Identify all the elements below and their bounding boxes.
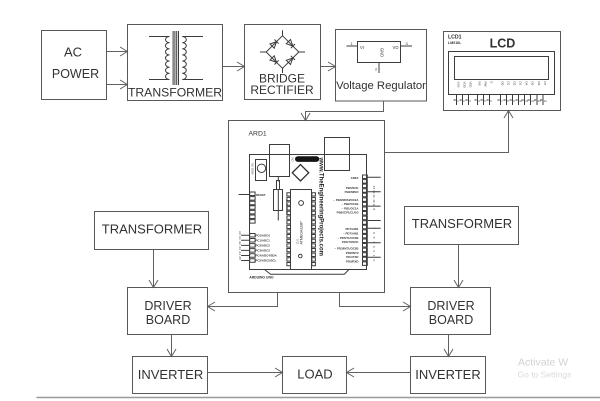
svg-text:PD0/RXD: PD0/RXD <box>346 260 359 264</box>
svg-text:PC3/ADC3: PC3/ADC3 <box>256 249 271 253</box>
svg-text:7: 7 <box>372 228 376 230</box>
svg-text:LOAD: LOAD <box>297 367 332 382</box>
svg-text:PD1/TXD: PD1/TXD <box>346 255 358 259</box>
svg-text:PC1/ADC1: PC1/ADC1 <box>256 239 271 243</box>
svg-text:3: 3 <box>372 246 376 248</box>
svg-text:D7: D7 <box>543 82 547 86</box>
svg-text:D1: D1 <box>507 82 511 86</box>
svg-text:TRANSFORMER: TRANSFORMER <box>102 222 202 237</box>
svg-text:Activate W: Activate W <box>518 357 568 369</box>
svg-text:ON: ON <box>291 157 295 161</box>
svg-text:5: 5 <box>372 237 376 239</box>
svg-text:4: 4 <box>372 241 376 243</box>
svg-text:D2: D2 <box>513 82 517 86</box>
svg-text:~ PD3/INT1/OC2B: ~ PD3/INT1/OC2B <box>334 246 358 250</box>
svg-text:PC5/ADC5/SCL: PC5/ADC5/SCL <box>256 259 277 263</box>
svg-text:VO: VO <box>392 45 399 50</box>
svg-text:VSS: VSS <box>457 82 461 88</box>
svg-text:10: 10 <box>372 199 376 203</box>
svg-text:LCD1: LCD1 <box>448 35 462 41</box>
svg-text:RESET: RESET <box>256 193 266 197</box>
svg-text:Voltage Regulator: Voltage Regulator <box>336 80 426 92</box>
svg-text:PD4/T0/XCK: PD4/T0/XCK <box>342 240 360 244</box>
svg-text:E: E <box>490 82 494 84</box>
svg-text:POWER: POWER <box>52 67 99 81</box>
svg-text:Go to Settings: Go to Settings <box>518 370 572 380</box>
svg-text:A0: A0 <box>238 231 242 235</box>
svg-text:RS: RS <box>478 82 482 86</box>
svg-text:TRANSFORMER: TRANSFORMER <box>128 86 222 100</box>
svg-text:1: 1 <box>372 255 376 257</box>
svg-text:LM016L: LM016L <box>448 41 462 45</box>
svg-text:9: 9 <box>372 204 376 206</box>
svg-text:INVERTER: INVERTER <box>138 367 204 382</box>
svg-text:0: 0 <box>372 259 376 261</box>
svg-text:www.TheEngineeringProjects.com: www.TheEngineeringProjects.com <box>318 157 324 256</box>
svg-text:BOARD: BOARD <box>146 313 190 327</box>
svg-text:PC0/ADC0: PC0/ADC0 <box>256 234 271 238</box>
svg-text:PD7/AIN1: PD7/AIN1 <box>345 227 358 231</box>
svg-text:LCD: LCD <box>490 37 516 51</box>
svg-text:D6: D6 <box>537 82 541 86</box>
svg-text:D3: D3 <box>519 82 523 86</box>
svg-text:PC2/ADC2: PC2/ADC2 <box>256 244 271 248</box>
svg-text:GND: GND <box>380 48 385 57</box>
svg-text:16-CLK16M: 16-CLK16M <box>285 200 289 216</box>
svg-text:PB0/ICP1/CLKO: PB0/ICP1/CLKO <box>337 210 360 214</box>
svg-text:1121: 1121 <box>296 238 300 244</box>
svg-text:A3: A3 <box>238 246 242 250</box>
svg-text:13: 13 <box>372 186 376 190</box>
svg-text:VI: VI <box>360 45 364 50</box>
svg-text:VEE: VEE <box>469 82 473 88</box>
svg-text:ARD1: ARD1 <box>249 131 267 138</box>
svg-text:VDD: VDD <box>463 82 467 89</box>
svg-text:A1: A1 <box>238 236 242 240</box>
svg-text:2: 2 <box>372 250 376 252</box>
svg-text:D4: D4 <box>525 82 529 86</box>
svg-text:8: 8 <box>372 208 376 210</box>
svg-text:INVERTER: INVERTER <box>415 367 481 382</box>
svg-text:AREF: AREF <box>351 176 359 180</box>
svg-text:PB4/MISO: PB4/MISO <box>345 190 360 194</box>
svg-text:11: 11 <box>372 195 376 198</box>
svg-text:D5: D5 <box>531 82 535 86</box>
svg-text:ARD1 ON: ARD1 ON <box>250 163 254 175</box>
svg-text:A4: A4 <box>238 251 242 255</box>
svg-text:RECTIFIER: RECTIFIER <box>250 83 314 97</box>
svg-text:PC4/ADC4/SDA: PC4/ADC4/SDA <box>256 254 278 258</box>
svg-text:BOARD: BOARD <box>429 313 473 327</box>
svg-text:12: 12 <box>372 190 376 194</box>
svg-text:DRIVER: DRIVER <box>427 299 474 313</box>
svg-text:AC: AC <box>64 45 82 60</box>
svg-text:6: 6 <box>372 232 376 234</box>
svg-text:RW: RW <box>484 82 488 87</box>
svg-text:D0: D0 <box>501 82 505 86</box>
svg-text:ATMEGA328P: ATMEGA328P <box>300 221 304 245</box>
svg-text:TRANSFORMER: TRANSFORMER <box>412 216 512 231</box>
svg-text:ARDUINO UNO: ARDUINO UNO <box>249 275 274 279</box>
svg-text:DRIVER: DRIVER <box>144 299 191 313</box>
svg-text:A5: A5 <box>238 256 242 260</box>
svg-text:A2: A2 <box>238 241 242 245</box>
